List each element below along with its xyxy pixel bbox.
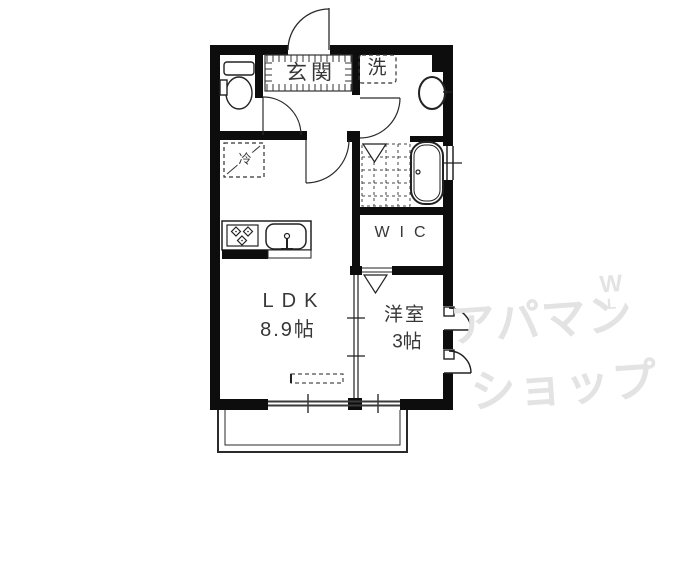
laundry-label: 洗 bbox=[367, 59, 386, 78]
bath-folding-door-icon bbox=[363, 144, 386, 162]
kitchen-sink-icon bbox=[266, 224, 306, 249]
floor-vent bbox=[291, 374, 343, 383]
western-room-label: 洋室 bbox=[384, 306, 426, 325]
ldk-size-label: 8.9帖 bbox=[260, 320, 316, 340]
wic-folding-door-icon bbox=[362, 268, 392, 293]
casement-window-icon bbox=[444, 350, 471, 373]
balcony-outline bbox=[218, 410, 407, 452]
toilet-icon bbox=[220, 62, 254, 109]
floorplan-page: 玄関 洗 冷 WIC LDK 8.9帖 洋室 3帖 アパマン W L ショップ bbox=[0, 0, 690, 575]
ldk-door-arc bbox=[306, 140, 349, 183]
entrance-door-arc bbox=[288, 8, 329, 50]
casement-window-icon bbox=[444, 307, 471, 330]
ldk-label: LDK bbox=[255, 291, 326, 311]
toilet-door-arc bbox=[263, 97, 301, 135]
wic-label: WIC bbox=[364, 225, 435, 241]
bathtub-icon bbox=[411, 142, 443, 204]
sliding-partition bbox=[347, 275, 365, 398]
floorplan-drawing bbox=[0, 0, 690, 575]
sliding-window-icon bbox=[268, 394, 400, 413]
genkan-label: 玄関 bbox=[282, 63, 336, 84]
washroom-door-arc bbox=[360, 98, 400, 138]
refrigerator-label: 冷 bbox=[237, 153, 252, 166]
bath-window-icon bbox=[442, 146, 462, 180]
western-room-size-label: 3帖 bbox=[392, 333, 422, 352]
